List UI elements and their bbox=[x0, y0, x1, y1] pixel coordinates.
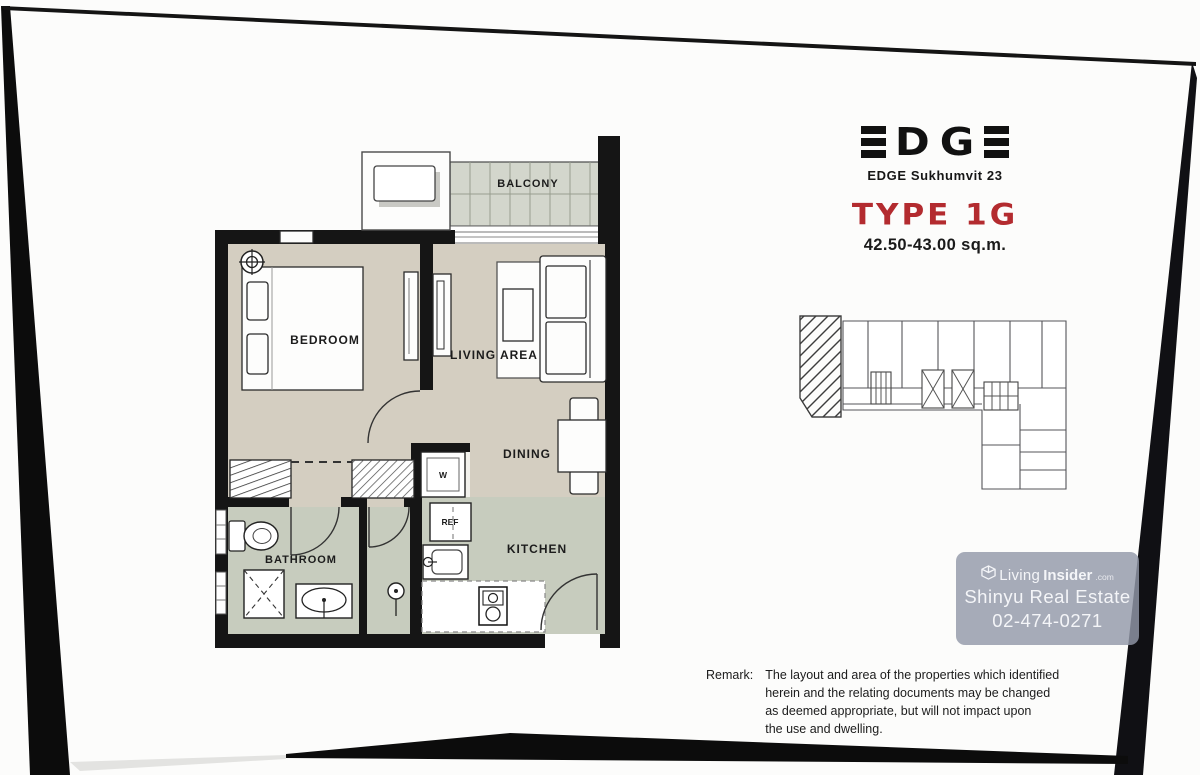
kitchen-label: KITCHEN bbox=[507, 542, 567, 556]
dining-chair bbox=[570, 398, 598, 422]
dining-chair bbox=[570, 470, 598, 494]
bedroom-label: BEDROOM bbox=[290, 333, 360, 347]
frame-top-line bbox=[1, 6, 1196, 66]
frame-bottom-shadow bbox=[70, 755, 286, 771]
house-cube-icon bbox=[981, 565, 996, 580]
coffee-table bbox=[503, 289, 533, 341]
washer-label: W bbox=[439, 470, 448, 480]
toilet-tank bbox=[229, 521, 245, 551]
toilet-bowl bbox=[244, 522, 278, 550]
dining-table bbox=[558, 420, 606, 472]
watermark-brand-insider: Insider bbox=[1043, 567, 1092, 584]
building-key-plan bbox=[790, 305, 1080, 500]
dining-label: DINING bbox=[503, 447, 551, 461]
living-label: LIVING AREA bbox=[450, 348, 538, 362]
bedroom-tv-panel bbox=[404, 272, 418, 360]
fridge-label: REF bbox=[442, 517, 459, 527]
balcony-label: BALCONY bbox=[497, 178, 558, 190]
frame-bottom-wedge bbox=[286, 733, 1128, 764]
unit-floor-plan: BALCONY bbox=[200, 130, 640, 660]
watermark-agency: Shinyu Real Estate bbox=[964, 586, 1130, 608]
washer-unit: W bbox=[421, 452, 465, 497]
watermark-phone: 02-474-0271 bbox=[992, 610, 1102, 632]
watermark-brand-living: Living bbox=[999, 567, 1040, 584]
frame-left-wedge bbox=[1, 6, 70, 775]
pillow bbox=[247, 334, 268, 374]
highlighted-unit bbox=[800, 316, 841, 417]
watermark-brand-tld: .com bbox=[1095, 572, 1113, 582]
watermark-brand: LivingInsider.com bbox=[981, 565, 1114, 584]
balcony-area: BALCONY bbox=[450, 162, 606, 243]
pillow bbox=[247, 282, 268, 320]
floorplan-sheet: BALCONY bbox=[0, 0, 1200, 775]
bathroom-label: BATHROOM bbox=[265, 554, 337, 566]
frame-right-wedge bbox=[1114, 62, 1197, 775]
watermark-badge: LivingInsider.com Shinyu Real Estate 02-… bbox=[956, 552, 1139, 645]
ac-ledge bbox=[362, 152, 450, 230]
fridge-unit: REF bbox=[430, 503, 471, 541]
